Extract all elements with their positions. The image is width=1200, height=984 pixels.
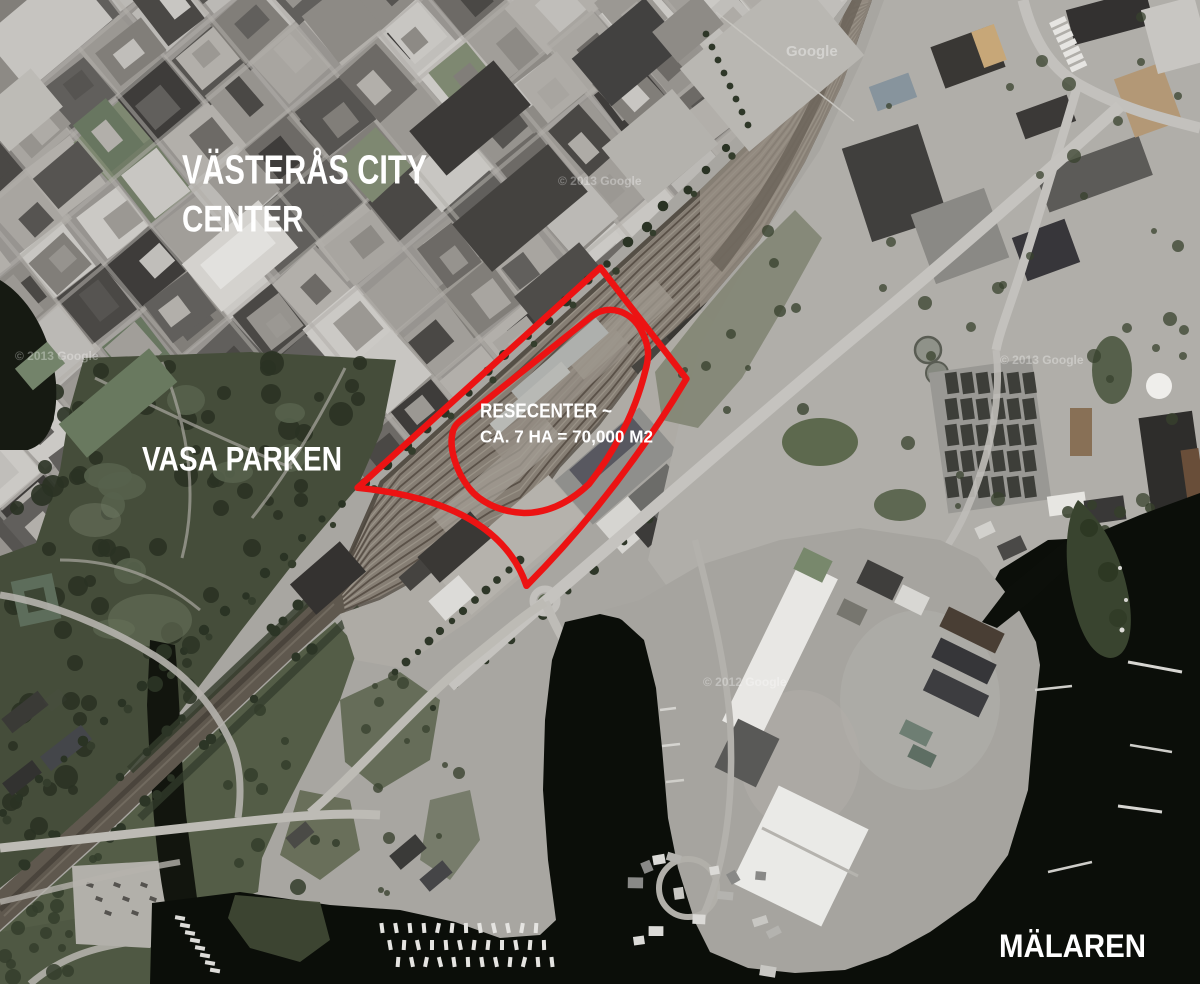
svg-text:VÄSTERÅS CITY: VÄSTERÅS CITY (182, 147, 427, 193)
svg-text:© 2013 Google: © 2013 Google (1000, 353, 1084, 367)
svg-text:CA. 7 HA = 70,000 M2: CA. 7 HA = 70,000 M2 (480, 427, 653, 447)
svg-text:MÄLAREN: MÄLAREN (999, 928, 1146, 964)
svg-text:Google: Google (786, 43, 838, 60)
svg-text:© 2013 Google: © 2013 Google (15, 349, 99, 363)
svg-text:© 2012 Google: © 2012 Google (703, 675, 787, 689)
svg-text:CENTER: CENTER (182, 199, 304, 240)
svg-text:© 2013 Google: © 2013 Google (558, 174, 642, 188)
svg-text:VASA PARKEN: VASA PARKEN (142, 441, 342, 479)
svg-text:RESECENTER ~: RESECENTER ~ (480, 400, 612, 423)
